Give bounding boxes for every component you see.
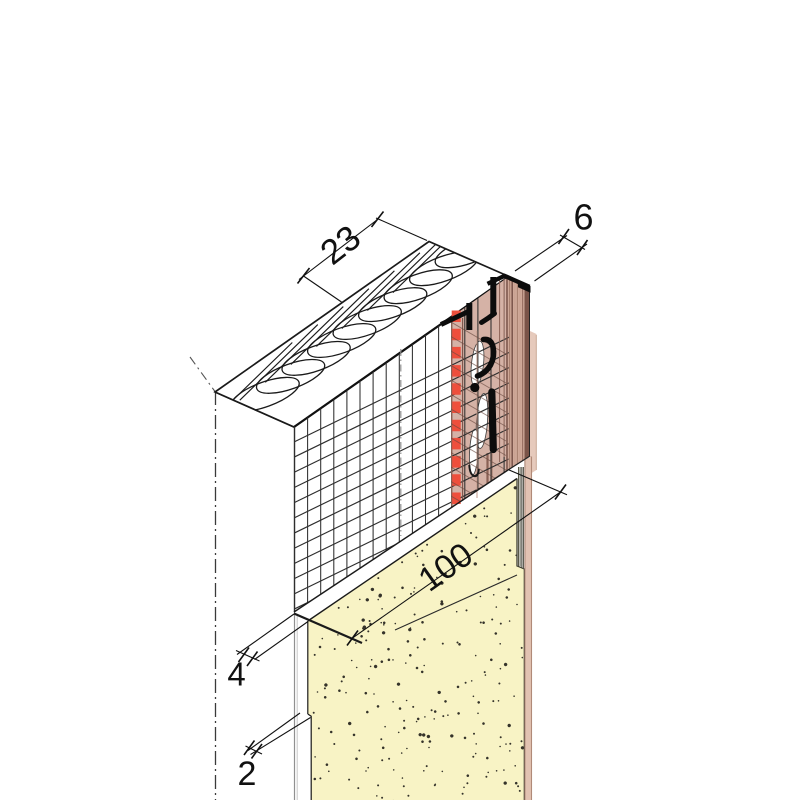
svg-text:4: 4 [227, 656, 245, 693]
svg-text:6: 6 [573, 197, 593, 238]
svg-text:2: 2 [238, 755, 257, 793]
